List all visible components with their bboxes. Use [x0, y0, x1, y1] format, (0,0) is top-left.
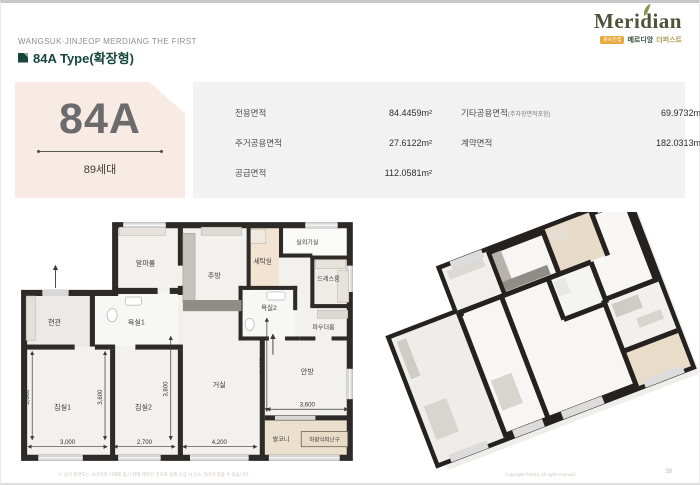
unit-divider: [37, 150, 163, 153]
area-value: 69.9732m²: [609, 108, 700, 118]
footer-copyright: Copyright ©2023. All right reserved.: [505, 472, 576, 477]
area-label: 주거공용면적: [235, 137, 327, 149]
brand-wordmark: Meridian: [594, 10, 682, 33]
dim-bed1-h: 3,600: [25, 389, 31, 405]
unit-households: 89세대: [15, 161, 185, 177]
room-label-kitchen: 주방: [208, 271, 222, 280]
dim-living-h: 3,800: [164, 381, 170, 397]
table-row: 주거공용면적 27.6122m²: [235, 130, 432, 155]
table-row: 전용면적 84.4459m²: [235, 100, 432, 125]
table-row: 공급면적 112.0581m²: [235, 160, 432, 185]
floorplan-2d: 현관 욕실1 알파룸 주방 세탁실 실외기실 드레스룸 욕실2 파우더룸 침실1…: [14, 216, 368, 466]
room-label-bath1: 욕실1: [128, 317, 145, 326]
area-group-left: 전용면적 84.4459m² 주거공용면적 27.6122m² 공급면적 112…: [235, 100, 432, 185]
unit-type-name: 84A: [15, 98, 185, 141]
dim-bed2-w: 2,700: [137, 440, 153, 446]
area-label: 기타공용면적(주차장면적포함): [461, 107, 609, 119]
room-label-laundry: 세탁실: [254, 257, 272, 266]
floorplan-3d-group: [374, 212, 698, 472]
room-label-balcony: 발코니: [273, 436, 290, 444]
logo-sub-brand: 메르디앙: [627, 35, 653, 45]
page-title: 84A Type(확장형): [18, 48, 134, 67]
area-value: 27.6122m²: [327, 138, 432, 148]
area-value: 182.0313m²: [609, 138, 700, 148]
area-value: 84.4459m²: [327, 108, 432, 118]
dim-master-w: 3,600: [300, 403, 316, 409]
leaf-icon: [638, 3, 652, 17]
title-square-icon: [18, 53, 28, 63]
dim-bed1-w: 3,000: [60, 440, 76, 446]
room-label-escape-hatch: 하향식피난구: [309, 436, 340, 444]
dim-bed2-h: 3,600: [98, 389, 104, 405]
room-label-entrance: 현관: [48, 317, 62, 326]
room-label-master: 안방: [301, 367, 315, 376]
footer-disclaimer: ※ 상기 평면도는 소비자의 이해를 돕기 위해 제작된 것으로 실제 시공 시…: [58, 472, 478, 478]
meridian-logo: Meridian 왕숙진접 메르디앙 더퍼스트: [594, 10, 682, 45]
area-label: 전용면적: [235, 107, 327, 119]
area-value: 112.0581m²: [327, 168, 432, 178]
logo-sub-suffix: 더퍼스트: [656, 35, 682, 45]
area-group-right: 기타공용면적(주차장면적포함) 69.9732m² 계약면적 182.0313m…: [461, 100, 700, 155]
page-number: 38: [665, 469, 672, 475]
room-label-bed2: 침실2: [135, 402, 152, 411]
room-label-alpha: 알파룸: [136, 259, 156, 268]
table-row: 계약면적 182.0313m²: [461, 130, 700, 155]
table-row: 기타공용면적(주차장면적포함) 69.9732m²: [461, 100, 700, 125]
floorplan-3d: [374, 212, 698, 472]
room-label-powder: 파우더룸: [312, 323, 335, 331]
logo-badge: 왕숙진접: [600, 36, 624, 44]
room-label-dress: 드레스룸: [317, 275, 340, 283]
project-name: WANGSUK·JINJEOP MERDIANG THE FIRST: [18, 37, 197, 46]
dim-master-h: 3,995: [260, 358, 266, 374]
room-label-living: 거실: [213, 380, 226, 389]
logo-subline: 왕숙진접 메르디앙 더퍼스트: [594, 35, 682, 45]
dim-living-w: 4,200: [212, 440, 228, 446]
room-label-outdoor-unit: 실외기실: [296, 238, 318, 246]
area-label: 계약면적: [461, 137, 609, 149]
area-table-panel: 전용면적 84.4459m² 주거공용면적 27.6122m² 공급면적 112…: [193, 82, 685, 198]
area-label: 공급면적: [235, 167, 327, 179]
room-label-bed1: 침실1: [54, 402, 71, 411]
page-title-text: 84A Type(확장형): [33, 48, 134, 67]
room-label-bath2: 욕실2: [261, 303, 277, 312]
unit-type-panel: 84A 89세대: [15, 82, 185, 198]
